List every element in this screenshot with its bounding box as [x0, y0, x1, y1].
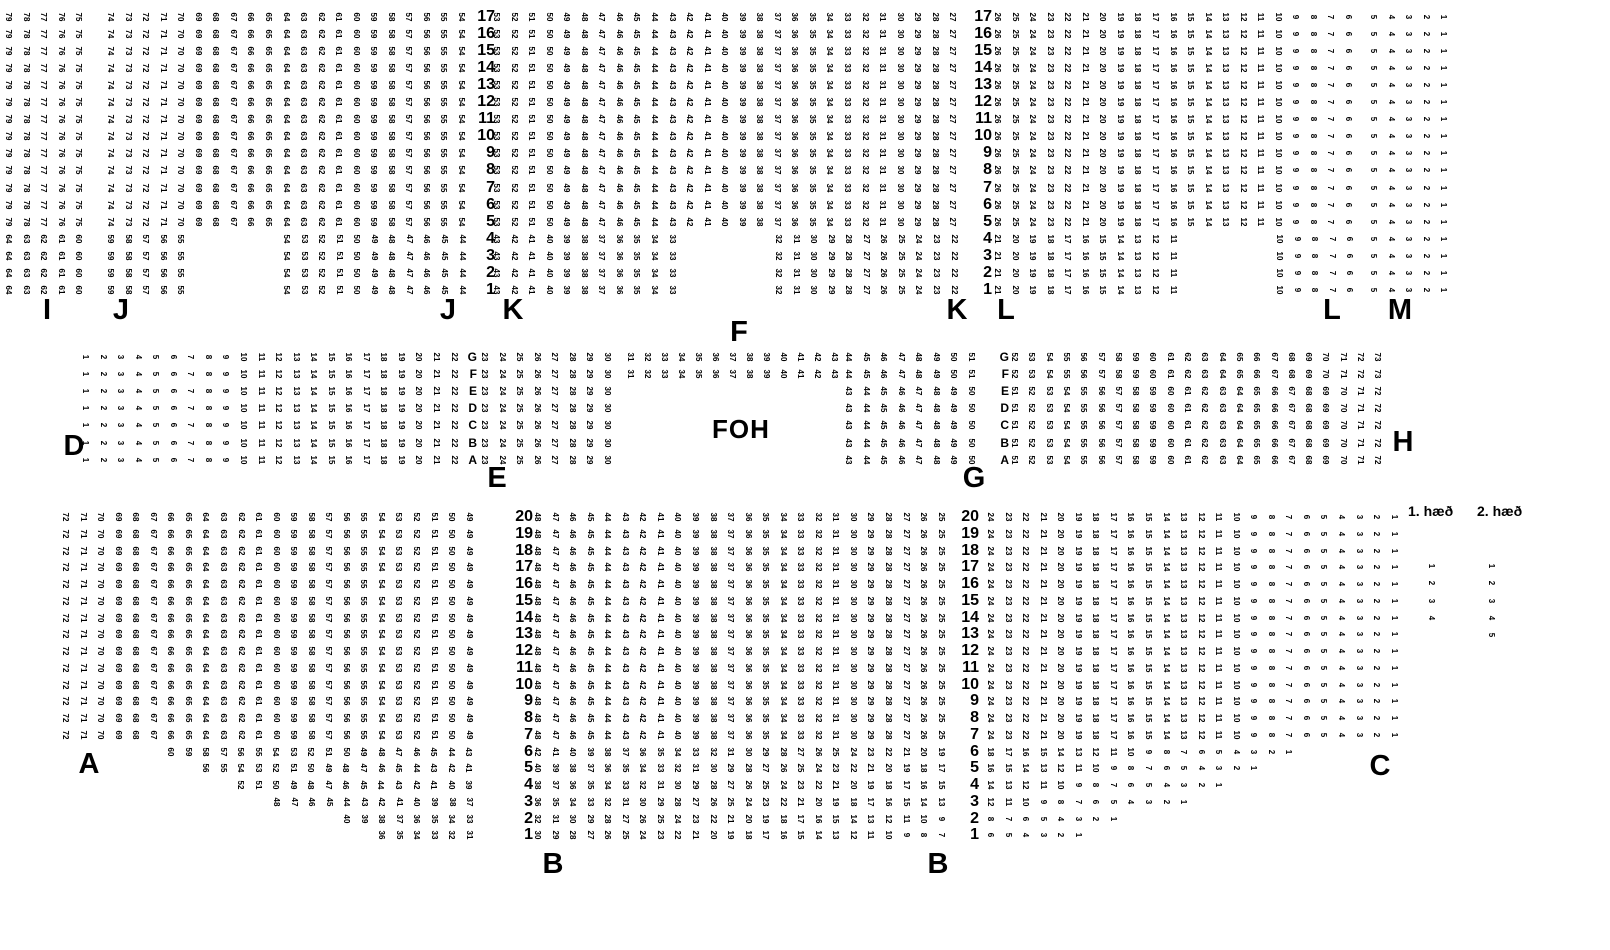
seat[interactable]: 3	[1353, 645, 1365, 657]
seat[interactable]: 61	[332, 113, 344, 125]
seat[interactable]: 31	[829, 528, 841, 540]
seat[interactable]: 48	[578, 79, 590, 91]
seat[interactable]: 23	[1044, 28, 1056, 40]
seat[interactable]: 8	[1307, 182, 1319, 194]
seat[interactable]: 20	[1009, 250, 1021, 262]
seat[interactable]: 61	[252, 612, 264, 624]
seat[interactable]: 28	[842, 267, 854, 279]
seat[interactable]: 26	[917, 561, 929, 573]
seat[interactable]: 51	[333, 284, 345, 296]
seat[interactable]: 32	[859, 96, 871, 108]
seat[interactable]: 6	[1300, 528, 1312, 540]
seat[interactable]: 70	[94, 679, 106, 691]
seat[interactable]: 70	[174, 28, 186, 40]
seat[interactable]: 61	[332, 62, 344, 74]
seat[interactable]: 66	[164, 679, 176, 691]
seat[interactable]: 56	[340, 628, 352, 640]
seat[interactable]: 12	[1054, 762, 1066, 774]
seat[interactable]: 42	[683, 45, 695, 57]
seat[interactable]: 56	[1095, 454, 1107, 466]
seat[interactable]: 56	[340, 612, 352, 624]
seat[interactable]: 53	[252, 762, 264, 774]
seat[interactable]: 42	[683, 147, 695, 159]
seat[interactable]: 31	[876, 79, 888, 91]
seat[interactable]: 67	[1268, 351, 1280, 363]
seat[interactable]: 3	[1402, 96, 1414, 108]
seat[interactable]: 24	[1026, 130, 1038, 142]
seat[interactable]: 8	[1307, 113, 1319, 125]
seat[interactable]: 28	[601, 813, 613, 825]
seat[interactable]: 52	[410, 628, 422, 640]
seat[interactable]: 19	[1114, 216, 1126, 228]
seat[interactable]: 21	[724, 813, 736, 825]
seat[interactable]: 22	[1061, 62, 1073, 74]
seat[interactable]: 64	[280, 130, 292, 142]
seat[interactable]: 49	[560, 130, 572, 142]
seat[interactable]: 19	[1114, 182, 1126, 194]
seat[interactable]: 7	[1324, 199, 1336, 211]
seat[interactable]: 52	[1008, 351, 1020, 363]
seat[interactable]: 26	[601, 829, 613, 841]
seat[interactable]: 12	[984, 796, 996, 808]
seat[interactable]: 52	[410, 679, 422, 691]
seat[interactable]: 34	[675, 368, 687, 380]
seat[interactable]: 37	[393, 813, 405, 825]
seat[interactable]: 79	[2, 62, 14, 74]
seat[interactable]: 66	[244, 199, 256, 211]
seat[interactable]: 31	[829, 612, 841, 624]
seat[interactable]: 43	[666, 182, 678, 194]
seat[interactable]: 68	[209, 199, 221, 211]
seat[interactable]: 15	[1184, 216, 1196, 228]
seat[interactable]: 29	[654, 796, 666, 808]
seat[interactable]: 48	[578, 45, 590, 57]
seat[interactable]: 32	[859, 216, 871, 228]
seat[interactable]: 6	[167, 419, 179, 431]
seat[interactable]: 8	[1265, 679, 1277, 691]
seat[interactable]: 7	[1282, 511, 1294, 523]
seat[interactable]: 40	[445, 779, 457, 791]
seat[interactable]: 71	[157, 62, 169, 74]
seat[interactable]: 67	[147, 545, 159, 557]
seat[interactable]: 56	[340, 595, 352, 607]
seat[interactable]: 31	[829, 595, 841, 607]
seat[interactable]: 1	[1388, 528, 1400, 540]
seat[interactable]: 68	[209, 147, 221, 159]
seat[interactable]: 69	[192, 164, 204, 176]
seat[interactable]: 37	[771, 216, 783, 228]
seat[interactable]: 31	[463, 829, 475, 841]
seat[interactable]: 58	[122, 250, 134, 262]
seat[interactable]: 36	[742, 628, 754, 640]
seat[interactable]: 59	[1146, 437, 1158, 449]
seat[interactable]: 54	[375, 679, 387, 691]
seat[interactable]: 23	[1002, 578, 1014, 590]
seat[interactable]: 65	[182, 679, 194, 691]
seat[interactable]: 7	[1324, 216, 1336, 228]
seat[interactable]: 13	[1177, 595, 1189, 607]
seat[interactable]: 29	[583, 385, 595, 397]
seat[interactable]: 33	[794, 545, 806, 557]
seat[interactable]: 52	[1025, 385, 1037, 397]
seat[interactable]: 8	[1089, 779, 1101, 791]
seat[interactable]: 25	[935, 695, 947, 707]
seat[interactable]: 34	[823, 79, 835, 91]
seat[interactable]: 57	[402, 130, 414, 142]
seat[interactable]: 18	[377, 402, 389, 414]
seat[interactable]: 21	[430, 437, 442, 449]
seat[interactable]: 55	[357, 561, 369, 573]
seat[interactable]: 19	[1114, 130, 1126, 142]
seat[interactable]: 19	[1114, 199, 1126, 211]
seat[interactable]: 25	[935, 712, 947, 724]
seat[interactable]: 27	[946, 147, 958, 159]
seat[interactable]: 57	[217, 746, 229, 758]
seat[interactable]: 26	[991, 199, 1003, 211]
seat[interactable]: 68	[1302, 437, 1314, 449]
seat[interactable]: 72	[59, 729, 71, 741]
seat[interactable]: 64	[280, 11, 292, 23]
seat[interactable]: 40	[671, 561, 683, 573]
seat[interactable]: 47	[595, 28, 607, 40]
seat[interactable]: 32	[641, 368, 653, 380]
seat[interactable]: 34	[777, 561, 789, 573]
seat[interactable]: 42	[636, 561, 648, 573]
seat[interactable]: 46	[613, 113, 625, 125]
seat[interactable]: 29	[864, 645, 876, 657]
seat[interactable]: 52	[508, 164, 520, 176]
seat[interactable]: 65	[1250, 437, 1262, 449]
seat[interactable]: 60	[270, 729, 282, 741]
seat[interactable]: 73	[122, 164, 134, 176]
seat[interactable]: 37	[724, 662, 736, 674]
seat[interactable]: 55	[437, 164, 449, 176]
seat[interactable]: 53	[392, 695, 404, 707]
seat[interactable]: 9	[1247, 561, 1259, 573]
seat[interactable]: 76	[55, 62, 67, 74]
seat[interactable]: 67	[147, 595, 159, 607]
seat[interactable]: 66	[164, 695, 176, 707]
seat[interactable]: 40	[718, 11, 730, 23]
seat[interactable]: 27	[619, 813, 631, 825]
seat[interactable]: 50	[965, 402, 977, 414]
seat[interactable]: 20	[412, 351, 424, 363]
seat[interactable]: 18	[1089, 612, 1101, 624]
seat[interactable]: 54	[375, 662, 387, 674]
seat[interactable]: 26	[917, 645, 929, 657]
seat[interactable]: 60	[1164, 437, 1176, 449]
seat[interactable]: 19	[900, 762, 912, 774]
seat[interactable]: 66	[1268, 419, 1280, 431]
seat[interactable]: 15	[1142, 595, 1154, 607]
seat[interactable]: 5	[1317, 729, 1329, 741]
seat[interactable]: 19	[1026, 284, 1038, 296]
seat[interactable]: 8	[1265, 612, 1277, 624]
seat[interactable]: 35	[654, 746, 666, 758]
seat[interactable]: 10	[1272, 11, 1284, 23]
seat[interactable]: 30	[847, 545, 859, 557]
seat[interactable]: 1	[1437, 79, 1449, 91]
seat[interactable]: 9	[1247, 729, 1259, 741]
seat[interactable]: 18	[377, 437, 389, 449]
seat[interactable]: 29	[911, 96, 923, 108]
seat[interactable]: 64	[280, 216, 292, 228]
seat[interactable]: 32	[772, 250, 784, 262]
seat[interactable]: 45	[357, 779, 369, 791]
seat[interactable]: 60	[1164, 454, 1176, 466]
seat[interactable]: 24	[671, 813, 683, 825]
seat[interactable]: 55	[1060, 368, 1072, 380]
seat[interactable]: 64	[199, 612, 211, 624]
seat[interactable]: 58	[385, 11, 397, 23]
seat[interactable]: 9	[1247, 511, 1259, 523]
seat[interactable]: 39	[736, 96, 748, 108]
seat[interactable]: 45	[438, 267, 450, 279]
seat[interactable]: 51	[525, 113, 537, 125]
seat[interactable]: 51	[525, 199, 537, 211]
seat[interactable]: 19	[1114, 28, 1126, 40]
seat[interactable]: 54	[455, 79, 467, 91]
seat[interactable]: 58	[385, 164, 397, 176]
seat[interactable]: 10	[1230, 645, 1242, 657]
seat[interactable]: 15	[325, 368, 337, 380]
seat[interactable]: 4	[1385, 182, 1397, 194]
seat[interactable]: 15	[829, 813, 841, 825]
seat[interactable]: 26	[707, 796, 719, 808]
seat[interactable]: 24	[1026, 79, 1038, 91]
seat[interactable]: 75	[72, 182, 84, 194]
seat[interactable]: 12	[1237, 130, 1249, 142]
seat[interactable]: 36	[788, 113, 800, 125]
seat[interactable]: 15	[935, 779, 947, 791]
seat[interactable]: 56	[1095, 419, 1107, 431]
seat[interactable]: 36	[788, 147, 800, 159]
seat[interactable]: 15	[1142, 528, 1154, 540]
seat[interactable]: 65	[182, 595, 194, 607]
seat[interactable]: 39	[760, 351, 772, 363]
seat[interactable]: 62	[315, 130, 327, 142]
seat[interactable]: 16	[882, 796, 894, 808]
seat[interactable]: 40	[718, 147, 730, 159]
seat[interactable]: 53	[1025, 368, 1037, 380]
seat[interactable]: 18	[1089, 679, 1101, 691]
seat[interactable]: 63	[217, 712, 229, 724]
seat[interactable]: 42	[636, 528, 648, 540]
seat[interactable]: 46	[566, 628, 578, 640]
seat[interactable]: 39	[689, 561, 701, 573]
seat[interactable]: 59	[287, 578, 299, 590]
seat[interactable]: 1	[79, 385, 91, 397]
seat[interactable]: 60	[270, 712, 282, 724]
seat[interactable]: 62	[235, 612, 247, 624]
seat[interactable]: 54	[375, 578, 387, 590]
seat[interactable]: 24	[1026, 28, 1038, 40]
seat[interactable]: 54	[455, 147, 467, 159]
seat[interactable]: 12	[272, 385, 284, 397]
seat[interactable]: 39	[736, 79, 748, 91]
seat[interactable]: 30	[601, 437, 613, 449]
seat[interactable]: 15	[325, 351, 337, 363]
seat[interactable]: 78	[20, 28, 32, 40]
seat[interactable]: 57	[322, 679, 334, 691]
seat[interactable]: 25	[513, 368, 525, 380]
seat[interactable]: 50	[947, 351, 959, 363]
seat[interactable]: 38	[707, 695, 719, 707]
seat[interactable]: 3	[1353, 511, 1365, 523]
seat[interactable]: 53	[298, 284, 310, 296]
seat[interactable]: 45	[877, 419, 889, 431]
seat[interactable]: 62	[235, 545, 247, 557]
seat[interactable]: 29	[911, 216, 923, 228]
seat[interactable]: 71	[157, 11, 169, 23]
seat[interactable]: 24	[984, 645, 996, 657]
seat[interactable]: 65	[262, 113, 274, 125]
seat[interactable]: 19	[1072, 679, 1084, 691]
seat[interactable]: 21	[1079, 45, 1091, 57]
seat[interactable]: 52	[1025, 419, 1037, 431]
seat[interactable]: 57	[139, 250, 151, 262]
seat[interactable]: 56	[340, 645, 352, 657]
seat[interactable]: 5	[1367, 147, 1379, 159]
seat[interactable]: 11	[1254, 182, 1266, 194]
seat[interactable]: 7	[1282, 612, 1294, 624]
seat[interactable]: 59	[367, 45, 379, 57]
seat[interactable]: 28	[929, 164, 941, 176]
seat[interactable]: 47	[357, 762, 369, 774]
seat[interactable]: 7	[1324, 182, 1336, 194]
seat[interactable]: 4	[1335, 712, 1347, 724]
seat[interactable]: 55	[437, 113, 449, 125]
seat[interactable]: 20	[1096, 96, 1108, 108]
seat[interactable]: 39	[760, 368, 772, 380]
seat[interactable]: 52	[410, 545, 422, 557]
seat[interactable]: 11	[1254, 79, 1266, 91]
seat[interactable]: 5	[1317, 679, 1329, 691]
seat[interactable]: 57	[322, 729, 334, 741]
seat[interactable]: 6	[1300, 612, 1312, 624]
seat[interactable]: 51	[252, 779, 264, 791]
seat[interactable]: 65	[182, 712, 194, 724]
seat[interactable]: 28	[882, 729, 894, 741]
seat[interactable]: 32	[812, 645, 824, 657]
seat[interactable]: 6	[1342, 96, 1354, 108]
seat[interactable]: 32	[445, 829, 457, 841]
seat[interactable]: 63	[217, 612, 229, 624]
seat[interactable]: 54	[455, 113, 467, 125]
seat[interactable]: 4	[1335, 561, 1347, 573]
seat[interactable]: 1	[79, 368, 91, 380]
seat[interactable]: 71	[157, 164, 169, 176]
seat[interactable]: 18	[742, 829, 754, 841]
seat[interactable]: 30	[601, 419, 613, 431]
seat[interactable]: 67	[227, 182, 239, 194]
seat[interactable]: 5	[1367, 216, 1379, 228]
seat[interactable]: 51	[428, 511, 440, 523]
seat[interactable]: 76	[55, 130, 67, 142]
seat[interactable]: 49	[947, 419, 959, 431]
seat[interactable]: 4	[1385, 164, 1397, 176]
seat[interactable]: 58	[305, 712, 317, 724]
seat[interactable]: 55	[437, 62, 449, 74]
seat[interactable]: 46	[566, 595, 578, 607]
seat[interactable]: 48	[385, 284, 397, 296]
seat[interactable]: 59	[287, 679, 299, 691]
seat[interactable]: 19	[395, 419, 407, 431]
seat[interactable]: 41	[654, 612, 666, 624]
seat[interactable]: 14	[1202, 164, 1214, 176]
seat[interactable]: 23	[1044, 216, 1056, 228]
seat[interactable]: 19	[1026, 267, 1038, 279]
seat[interactable]: 14	[1160, 712, 1172, 724]
seat[interactable]: 66	[1268, 454, 1280, 466]
seat[interactable]: 29	[864, 729, 876, 741]
seat[interactable]: 42	[636, 679, 648, 691]
seat[interactable]: 38	[753, 182, 765, 194]
seat[interactable]: 43	[619, 612, 631, 624]
seat[interactable]: 39	[560, 233, 572, 245]
seat[interactable]: 46	[566, 695, 578, 707]
seat[interactable]: 57	[402, 28, 414, 40]
seat[interactable]: 45	[630, 28, 642, 40]
seat[interactable]: 52	[315, 267, 327, 279]
seat[interactable]: 24	[984, 695, 996, 707]
seat[interactable]: 43	[619, 528, 631, 540]
seat[interactable]: 60	[270, 578, 282, 590]
seat[interactable]: 67	[227, 130, 239, 142]
seat[interactable]: 23	[478, 368, 490, 380]
seat[interactable]: 66	[244, 45, 256, 57]
seat[interactable]: 21	[430, 368, 442, 380]
seat[interactable]: 41	[654, 511, 666, 523]
seat[interactable]: 34	[823, 96, 835, 108]
seat[interactable]: 39	[736, 199, 748, 211]
seat[interactable]: 26	[991, 216, 1003, 228]
seat[interactable]: 11	[1212, 612, 1224, 624]
seat[interactable]: 30	[847, 679, 859, 691]
seat[interactable]: 55	[437, 199, 449, 211]
seat[interactable]: 22	[1061, 164, 1073, 176]
seat[interactable]: 4	[1054, 813, 1066, 825]
seat[interactable]: 73	[1371, 368, 1383, 380]
seat[interactable]: 31	[876, 62, 888, 74]
seat[interactable]: 48	[385, 250, 397, 262]
seat[interactable]: 51	[525, 11, 537, 23]
seat[interactable]: 60	[350, 11, 362, 23]
seat[interactable]: 19	[724, 829, 736, 841]
seat[interactable]: 38	[753, 199, 765, 211]
seat[interactable]: 11	[1002, 796, 1014, 808]
seat[interactable]: 46	[566, 662, 578, 674]
seat[interactable]: 9	[1247, 595, 1259, 607]
seat[interactable]: 19	[1072, 612, 1084, 624]
seat[interactable]: 71	[77, 645, 89, 657]
seat[interactable]: 31	[829, 628, 841, 640]
seat[interactable]: 59	[287, 528, 299, 540]
seat[interactable]: 37	[771, 62, 783, 74]
seat[interactable]: 28	[929, 45, 941, 57]
seat[interactable]: 6	[1342, 199, 1354, 211]
seat[interactable]: 58	[1112, 368, 1124, 380]
seat[interactable]: 38	[753, 45, 765, 57]
seat[interactable]: 78	[20, 11, 32, 23]
seat[interactable]: 55	[437, 130, 449, 142]
seat[interactable]: 45	[323, 796, 335, 808]
seat[interactable]: 60	[270, 628, 282, 640]
seat[interactable]: 54	[1060, 419, 1072, 431]
seat[interactable]: 2	[1370, 612, 1382, 624]
seat[interactable]: 67	[227, 45, 239, 57]
seat[interactable]: 9	[1247, 528, 1259, 540]
